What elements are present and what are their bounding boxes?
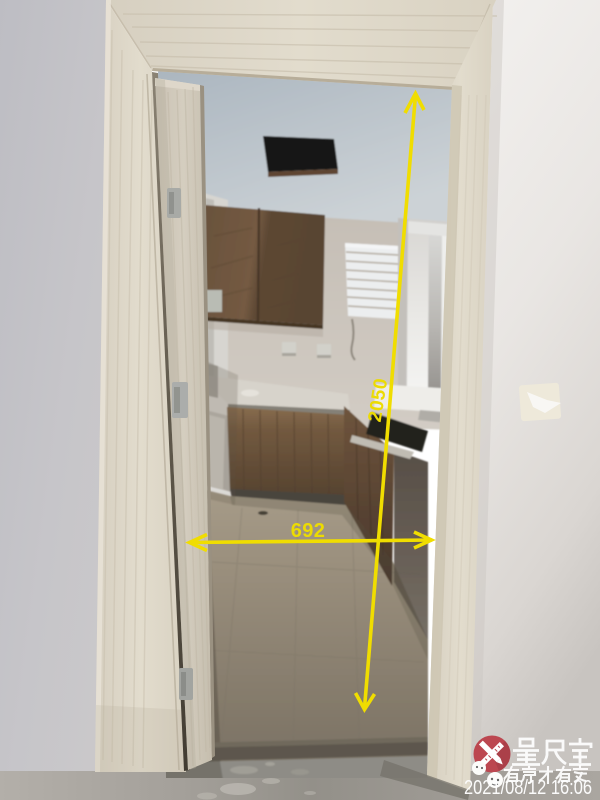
svg-text:692: 692 (291, 520, 326, 542)
svg-text:2021/08/12 16:06: 2021/08/12 16:06 (464, 777, 592, 799)
